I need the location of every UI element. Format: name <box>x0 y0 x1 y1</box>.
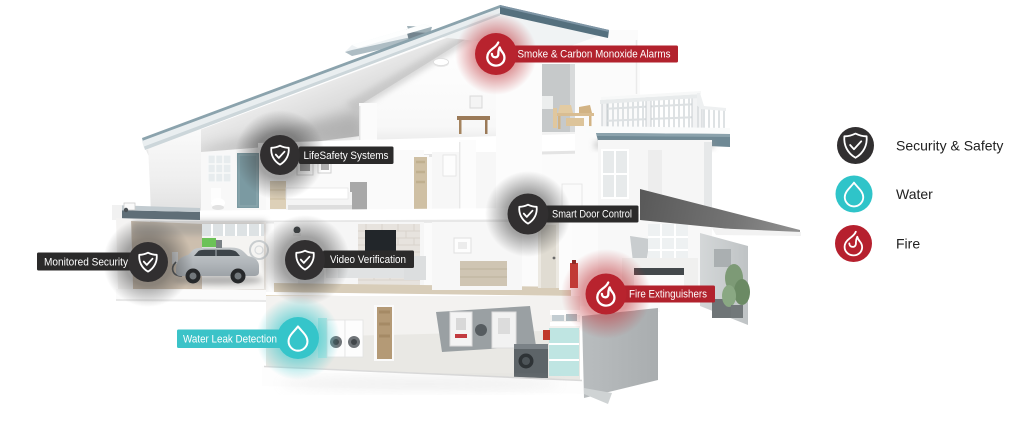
svg-text:Water: Water <box>896 186 933 202</box>
svg-text:Fire Extinguishers: Fire Extinguishers <box>629 289 707 301</box>
svg-text:Fire: Fire <box>896 236 920 252</box>
svg-text:Video Verification: Video Verification <box>330 254 406 266</box>
svg-text:Monitored Security: Monitored Security <box>44 257 128 269</box>
svg-text:Smoke & Carbon Monoxide Alarms: Smoke & Carbon Monoxide Alarms <box>518 49 671 61</box>
svg-text:Water Leak Detection: Water Leak Detection <box>183 334 277 346</box>
svg-text:LifeSafety Systems: LifeSafety Systems <box>304 150 389 162</box>
svg-text:Security & Safety: Security & Safety <box>896 138 1003 154</box>
svg-text:Smart Door Control: Smart Door Control <box>552 209 632 221</box>
